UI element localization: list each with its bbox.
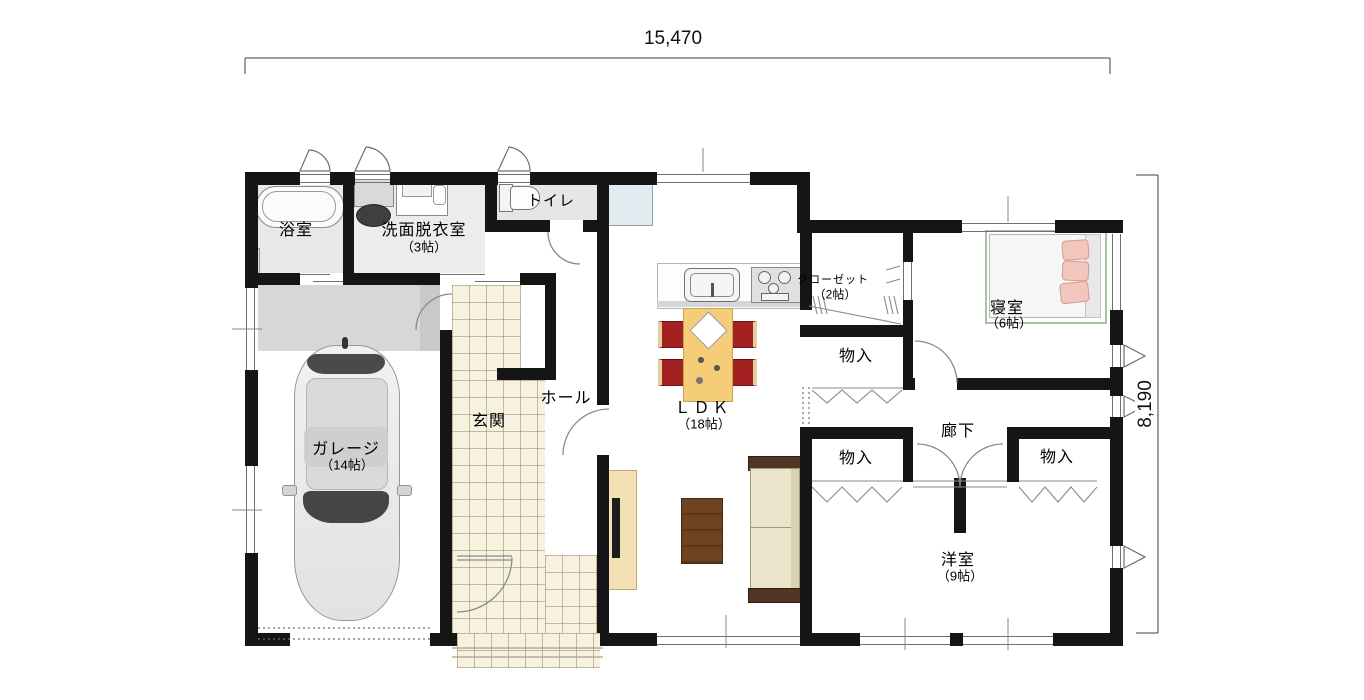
porch-step-lines [452, 648, 603, 657]
room-label-storage-north: 物入 [839, 342, 873, 366]
dimension-height: 8,190 [1135, 373, 1157, 435]
room-label-storage-west: 物入 [839, 444, 873, 468]
plan-linework [0, 0, 1364, 700]
room-size-bedroom: （6帖） [986, 313, 1032, 332]
floor-plan: 15,470 8,190 浴室 洗面脱衣室 （3帖） トイレ 玄関 ホール ガレ… [0, 0, 1364, 700]
casement-window-icon [300, 147, 530, 171]
room-label-corridor: 廊下 [941, 417, 975, 441]
room-size-western-room: （9帖） [937, 566, 983, 585]
room-label-toilet: トイレ [527, 190, 575, 211]
room-size-closet: （2帖） [814, 286, 857, 303]
dimension-width: 15,470 [637, 28, 709, 50]
room-label-entrance: 玄関 [472, 407, 506, 431]
room-size-washroom: （3帖） [401, 237, 447, 256]
room-label-bath: 浴室 [279, 216, 313, 240]
dimension-lines [245, 58, 1158, 633]
room-size-ldk: （18帖） [677, 414, 730, 433]
room-label-storage-east: 物入 [1040, 443, 1074, 467]
room-size-garage: （14帖） [320, 455, 373, 474]
room-label-hall: ホール [540, 384, 591, 408]
